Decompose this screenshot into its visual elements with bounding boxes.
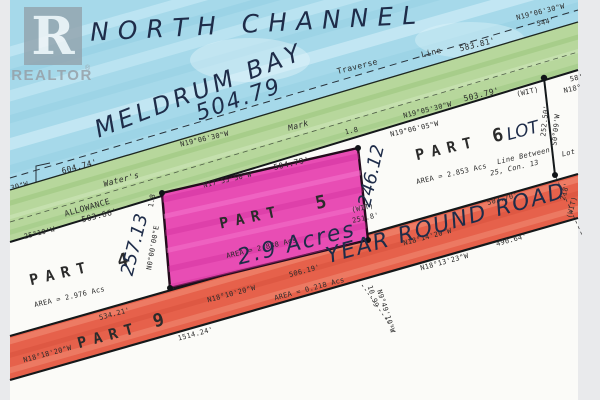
realtor-logo-text: REALTOR <box>11 67 93 84</box>
survey-map-photo: Traverse Line N19°06'30"W 583.81' N19°06… <box>0 0 600 400</box>
survey-map-canvas: Traverse Line N19°06'30"W 583.81' N19°06… <box>0 0 600 400</box>
registered-mark: ® <box>85 64 91 72</box>
monument-dot <box>167 285 173 291</box>
monument-dot <box>159 190 165 196</box>
monument-dot <box>552 172 558 178</box>
monument-dot <box>355 145 361 151</box>
realtor-logo-letter: R <box>31 6 75 67</box>
monument-dot <box>541 75 547 81</box>
